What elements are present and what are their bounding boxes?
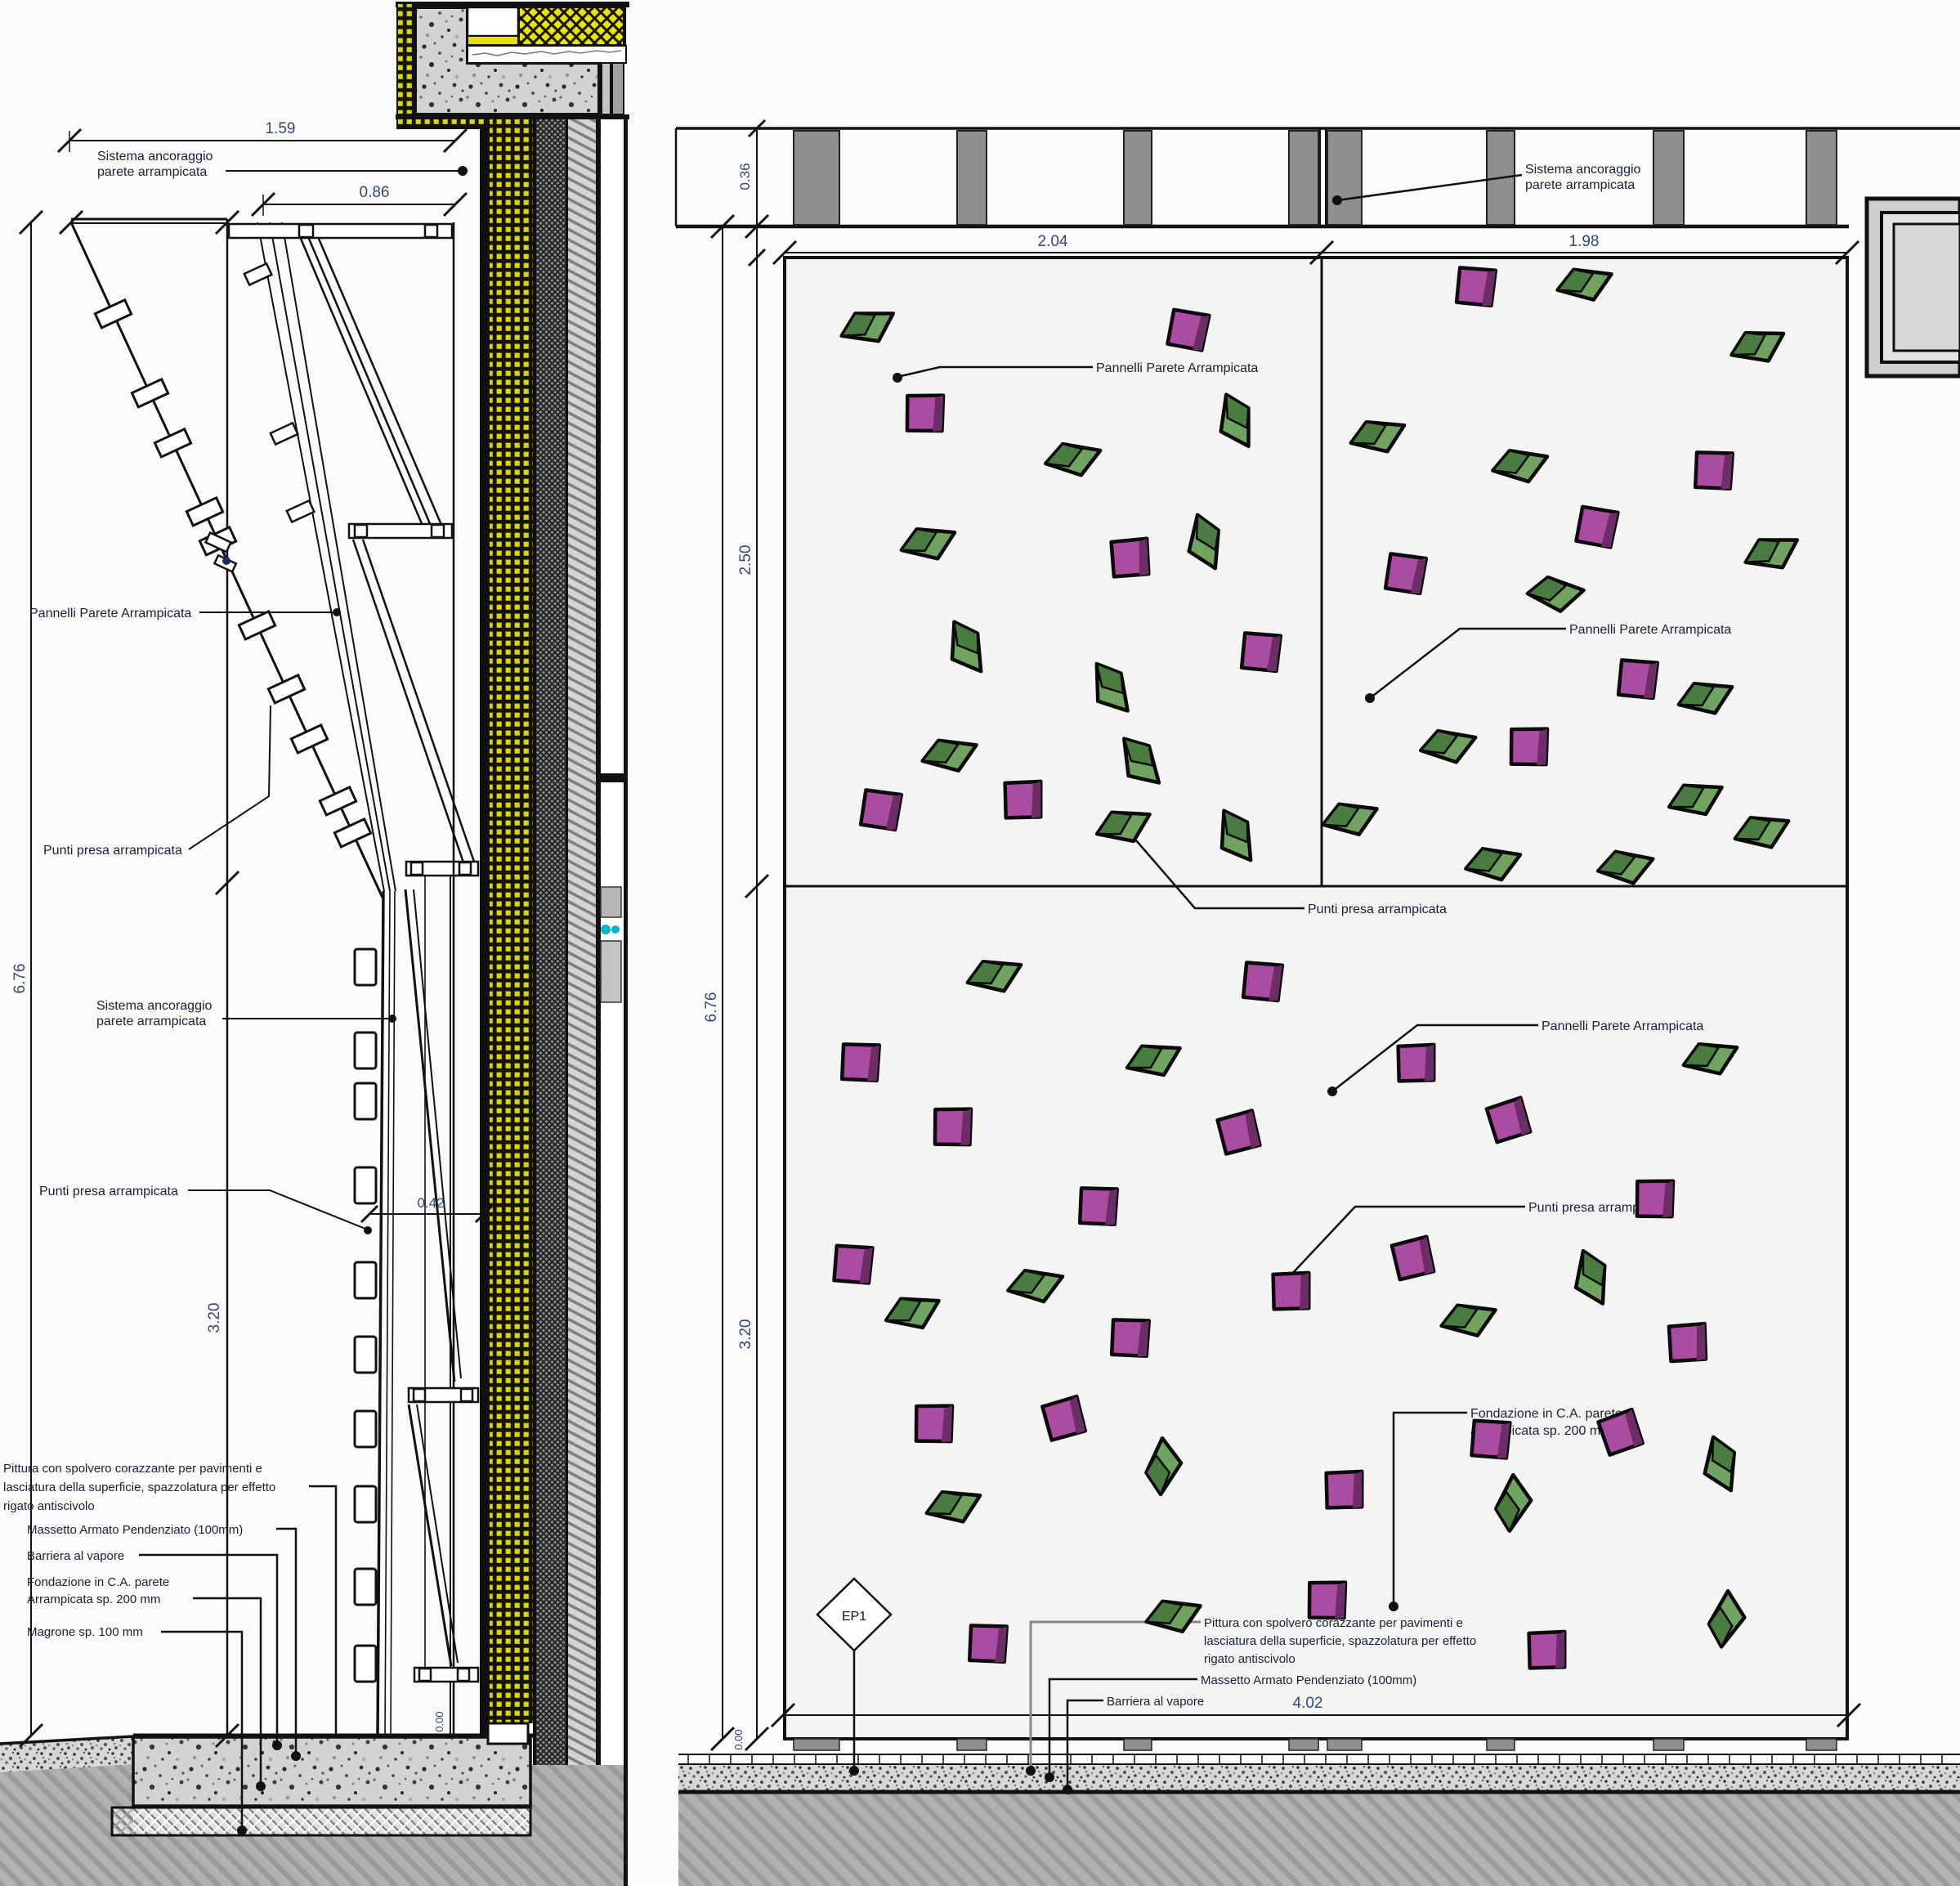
svg-text:Punti presa arrampicata: Punti presa arrampicata <box>39 1185 178 1198</box>
svg-text:0.00: 0.00 <box>433 1711 445 1731</box>
svg-text:Massetto Armato Pendenziato (1: Massetto Armato Pendenziato (100mm) <box>27 1523 243 1537</box>
svg-text:Pittura con spolvero corazzant: Pittura con spolvero corazzante per pavi… <box>3 1462 262 1476</box>
svg-text:6.76: 6.76 <box>703 992 720 1023</box>
svg-text:Barriera al vapore: Barriera al vapore <box>27 1549 124 1563</box>
svg-text:Pannelli Parete Arrampicata: Pannelli Parete Arrampicata <box>29 607 191 620</box>
svg-text:0.86: 0.86 <box>360 184 390 201</box>
svg-text:Pannelli Parete Arrampicata: Pannelli Parete Arrampicata <box>1569 623 1731 637</box>
svg-text:Punti presa arrampicata: Punti presa arrampicata <box>43 844 182 858</box>
svg-text:Fondazione in C.A. parete: Fondazione in C.A. parete <box>1470 1407 1622 1421</box>
svg-text:Pannelli Parete Arrampicata: Pannelli Parete Arrampicata <box>1542 1019 1703 1033</box>
svg-text:0.00: 0.00 <box>732 1729 745 1749</box>
svg-text:Sistema ancoraggio: Sistema ancoraggio <box>97 150 213 164</box>
svg-text:Fondazione in C.A. parete: Fondazione in C.A. parete <box>27 1575 169 1589</box>
svg-text:2.50: 2.50 <box>737 545 754 576</box>
svg-text:Arrampicata sp. 200 mm: Arrampicata sp. 200 mm <box>27 1593 160 1606</box>
svg-text:6.76: 6.76 <box>11 964 29 994</box>
svg-text:Punti presa arrampicata: Punti presa arrampicata <box>1308 903 1447 916</box>
svg-text:Pannelli Parete Arrampicata: Pannelli Parete Arrampicata <box>1096 361 1258 375</box>
svg-text:4.02: 4.02 <box>1293 1695 1323 1712</box>
svg-text:2.04: 2.04 <box>1038 233 1068 250</box>
svg-text:3.20: 3.20 <box>737 1319 754 1350</box>
svg-text:lasciatura della superficie, s: lasciatura della superficie, spazzolatur… <box>1204 1634 1476 1648</box>
svg-text:parete arrampicata: parete arrampicata <box>1525 178 1635 192</box>
svg-text:Sistema ancoraggio: Sistema ancoraggio <box>96 999 213 1013</box>
svg-text:Massetto Armato Pendenziato (1: Massetto Armato Pendenziato (100mm) <box>1201 1673 1416 1687</box>
svg-text:1.59: 1.59 <box>266 120 296 137</box>
svg-text:3.20: 3.20 <box>206 1303 223 1333</box>
svg-text:rigato antiscivolo: rigato antiscivolo <box>3 1499 95 1513</box>
svg-text:parete arrampicata: parete arrampicata <box>96 1015 206 1028</box>
svg-text:0.36: 0.36 <box>737 163 753 190</box>
svg-text:Barriera al vapore: Barriera al vapore <box>1107 1695 1204 1709</box>
svg-text:Sistema ancoraggio: Sistema ancoraggio <box>1525 163 1641 177</box>
svg-text:EP1: EP1 <box>842 1610 866 1624</box>
svg-text:lasciatura della superficie, s: lasciatura della superficie, spazzolatur… <box>3 1481 275 1494</box>
svg-text:rigato antiscivolo: rigato antiscivolo <box>1204 1652 1295 1666</box>
svg-text:Magrone sp. 100 mm: Magrone sp. 100 mm <box>27 1625 143 1639</box>
svg-text:parete arrampicata: parete arrampicata <box>97 165 207 179</box>
svg-text:0.42: 0.42 <box>417 1195 444 1211</box>
svg-text:1.98: 1.98 <box>1569 233 1600 250</box>
